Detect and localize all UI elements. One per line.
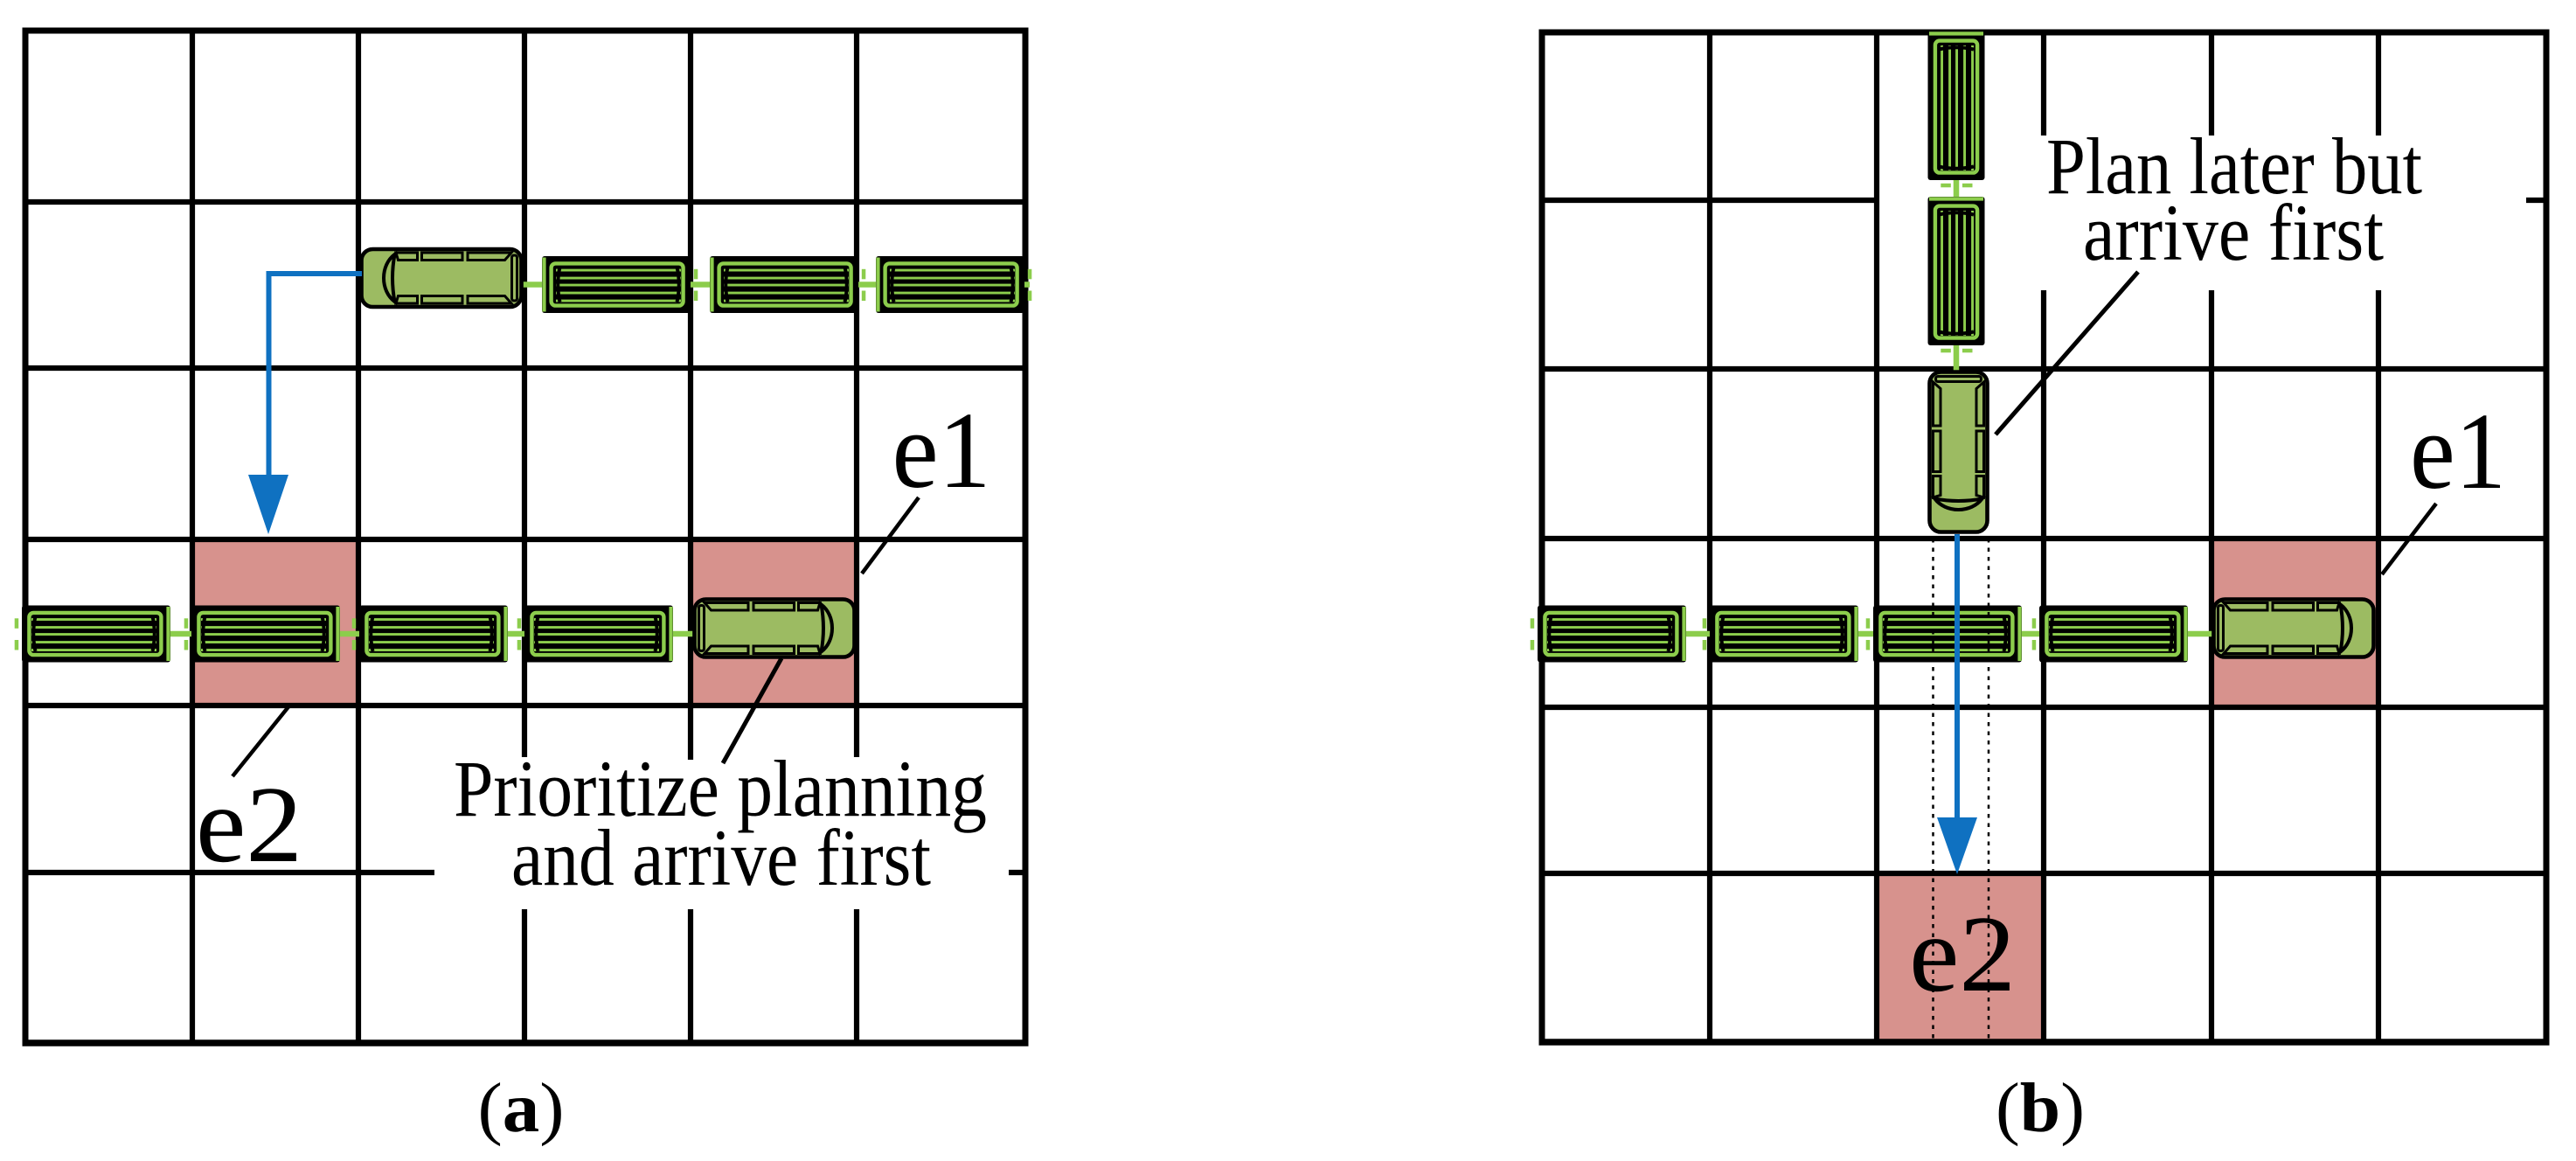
svg-text:(a): (a) — [478, 1070, 565, 1147]
svg-text:and arrive first: and arrive first — [511, 813, 931, 902]
svg-text:(b): (b) — [1996, 1070, 2085, 1147]
svg-text:e2: e2 — [196, 765, 302, 886]
svg-text:e2: e2 — [1909, 894, 2016, 1015]
svg-text:e1: e1 — [2410, 392, 2506, 512]
svg-text:arrive first: arrive first — [2083, 188, 2384, 277]
svg-text:e1: e1 — [892, 391, 991, 511]
